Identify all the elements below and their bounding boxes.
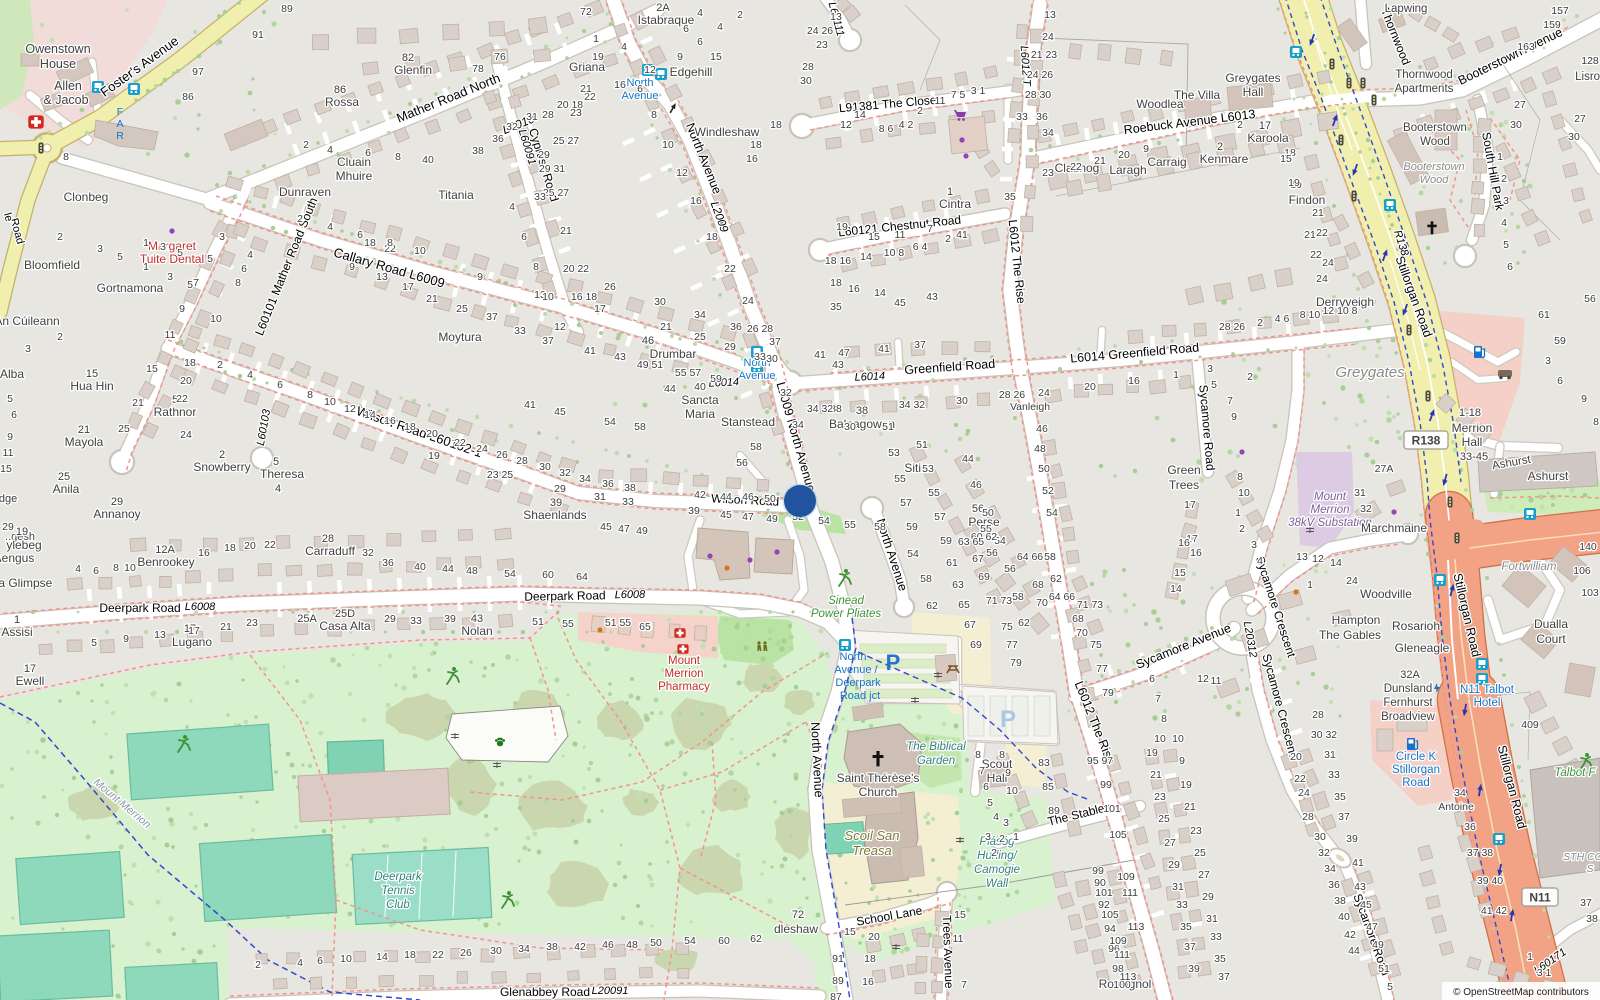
svg-text:30: 30	[800, 75, 812, 87]
svg-text:77: 77	[1006, 639, 1018, 651]
svg-text:8: 8	[1593, 416, 1599, 428]
svg-text:6: 6	[1507, 261, 1513, 273]
svg-text:24 26: 24 26	[1027, 69, 1053, 81]
svg-text:Booterstown: Booterstown	[1403, 161, 1464, 173]
svg-text:5: 5	[273, 456, 279, 468]
svg-text:17: 17	[188, 625, 200, 637]
svg-text:69: 69	[978, 571, 990, 583]
svg-text:25D: 25D	[335, 608, 355, 620]
svg-text:3: 3	[167, 271, 173, 283]
svg-text:Hua Hin: Hua Hin	[70, 379, 113, 393]
svg-text:4: 4	[327, 221, 333, 233]
svg-text:4: 4	[697, 7, 703, 19]
svg-text:44: 44	[720, 491, 732, 503]
svg-text:2: 2	[255, 959, 261, 971]
svg-text:Hall: Hall	[1462, 435, 1483, 449]
svg-text:49: 49	[1372, 939, 1384, 951]
svg-text:409: 409	[1521, 719, 1539, 731]
svg-text:Deerpark: Deerpark	[835, 677, 881, 689]
svg-text:3: 3	[97, 243, 103, 255]
svg-text:50: 50	[1038, 463, 1050, 475]
svg-text:28: 28	[542, 109, 554, 121]
svg-text:Aengus: Aengus	[0, 551, 34, 565]
svg-text:14: 14	[376, 951, 388, 963]
svg-text:Thornwood: Thornwood	[1395, 69, 1453, 81]
svg-text:14: 14	[364, 409, 376, 421]
svg-text:38: 38	[1334, 895, 1346, 907]
svg-text:38: 38	[546, 941, 558, 953]
svg-text:39: 39	[550, 497, 562, 509]
svg-text:8: 8	[533, 261, 539, 273]
svg-text:16: 16	[848, 283, 860, 295]
svg-text:Hall: Hall	[1243, 85, 1264, 99]
svg-text:5: 5	[177, 247, 183, 259]
svg-text:3: 3	[219, 231, 225, 243]
svg-text:36: 36	[730, 321, 742, 333]
svg-text:25 27: 25 27	[543, 187, 569, 199]
svg-text:83: 83	[1038, 757, 1050, 769]
svg-text:4: 4	[275, 483, 281, 495]
svg-text:72: 72	[792, 909, 804, 921]
svg-text:2: 2	[917, 105, 923, 117]
svg-text:59: 59	[710, 373, 722, 385]
svg-text:29: 29	[111, 496, 123, 508]
svg-text:3 1: 3 1	[971, 85, 986, 97]
svg-text:7 5: 7 5	[951, 89, 966, 101]
svg-text:25: 25	[1194, 847, 1206, 859]
svg-text:51: 51	[916, 439, 928, 451]
svg-text:89: 89	[832, 975, 844, 987]
svg-text:9: 9	[1179, 755, 1185, 767]
svg-text:8: 8	[307, 389, 313, 401]
svg-text:27: 27	[1164, 837, 1176, 849]
svg-text:37: 37	[542, 335, 554, 347]
svg-text:21: 21	[660, 321, 672, 333]
svg-text:99: 99	[1092, 865, 1104, 877]
svg-text:111: 111	[1122, 887, 1138, 899]
svg-text:56: 56	[1584, 293, 1596, 305]
svg-text:19: 19	[836, 221, 848, 233]
svg-text:24 26: 24 26	[807, 25, 833, 37]
svg-text:Trees: Trees	[1169, 478, 1199, 492]
svg-text:2: 2	[57, 231, 63, 243]
svg-text:111: 111	[1114, 949, 1130, 961]
svg-text:Kenmare: Kenmare	[1200, 152, 1249, 166]
svg-text:6: 6	[683, 23, 689, 35]
svg-text:38: 38	[472, 145, 484, 157]
svg-text:37: 37	[1184, 941, 1196, 953]
svg-text:Rathnor: Rathnor	[154, 405, 197, 419]
svg-text:62: 62	[926, 600, 938, 612]
svg-text:59: 59	[906, 521, 918, 533]
svg-text:6: 6	[317, 955, 323, 967]
svg-text:47: 47	[742, 511, 754, 523]
svg-text:33: 33	[754, 351, 766, 363]
svg-text:34: 34	[1454, 787, 1466, 799]
svg-text:8: 8	[235, 277, 241, 289]
svg-text:68: 68	[1032, 579, 1044, 591]
svg-text:52: 52	[1042, 485, 1054, 497]
svg-text:4: 4	[1501, 217, 1507, 229]
svg-text:6: 6	[357, 229, 363, 241]
svg-text:10: 10	[1006, 785, 1018, 797]
svg-text:14: 14	[860, 251, 872, 263]
svg-text:3: 3	[985, 831, 991, 843]
svg-text:9: 9	[1231, 411, 1237, 423]
svg-text:9: 9	[7, 431, 13, 443]
svg-text:9: 9	[477, 271, 483, 283]
svg-text:34 32: 34 32	[807, 403, 833, 415]
svg-text:22: 22	[1294, 773, 1306, 785]
svg-text:✝: ✝	[870, 749, 887, 771]
svg-text:20 22: 20 22	[563, 263, 589, 275]
svg-text:15: 15	[868, 231, 880, 243]
svg-text:18: 18	[364, 237, 376, 249]
svg-text:69: 69	[970, 639, 982, 651]
svg-text:Windleshaw: Windleshaw	[695, 125, 760, 139]
svg-text:48: 48	[466, 565, 478, 577]
svg-text:30: 30	[766, 353, 778, 365]
svg-text:Power Pliates: Power Pliates	[811, 608, 882, 620]
svg-text:4: 4	[75, 563, 81, 575]
svg-text:30: 30	[1568, 131, 1580, 143]
svg-text:33: 33	[1328, 769, 1340, 781]
svg-text:ea Glimpse: ea Glimpse	[0, 576, 53, 590]
svg-text:24: 24	[476, 443, 488, 455]
svg-text:2: 2	[1257, 317, 1263, 329]
svg-text:22: 22	[1070, 161, 1082, 173]
svg-text:2: 2	[991, 847, 997, 859]
svg-text:2: 2	[1501, 173, 1507, 185]
svg-text:27A: 27A	[1375, 463, 1394, 475]
svg-text:2: 2	[57, 331, 63, 343]
svg-text:19: 19	[1180, 779, 1192, 791]
svg-text:10 8: 10 8	[884, 247, 905, 259]
svg-text:11: 11	[953, 933, 964, 945]
svg-text:N11 Talbot: N11 Talbot	[1460, 684, 1515, 696]
svg-text:R: R	[116, 130, 124, 142]
svg-text:10: 10	[1154, 733, 1166, 745]
svg-text:Dunsland: Dunsland	[1384, 683, 1433, 695]
svg-text:4: 4	[327, 144, 333, 156]
svg-text:29: 29	[1202, 891, 1214, 903]
svg-text:1: 1	[1497, 151, 1503, 163]
svg-text:5: 5	[207, 253, 213, 265]
svg-text:30: 30	[844, 421, 856, 433]
svg-text:33-45: 33-45	[1460, 451, 1488, 463]
svg-text:3: 3	[160, 241, 166, 253]
svg-text:20: 20	[1118, 149, 1130, 161]
svg-text:25A: 25A	[297, 613, 317, 625]
svg-text:36: 36	[1464, 821, 1476, 833]
svg-text:19: 19	[592, 51, 604, 63]
svg-text:7: 7	[927, 223, 933, 235]
svg-text:24: 24	[742, 295, 754, 307]
svg-text:27: 27	[1514, 99, 1526, 111]
svg-text:50: 50	[650, 937, 662, 949]
svg-text:16 18: 16 18	[571, 291, 597, 303]
svg-text:36: 36	[492, 133, 504, 145]
svg-text:2: 2	[945, 233, 951, 245]
svg-text:2: 2	[737, 9, 743, 21]
svg-text:39: 39	[1188, 963, 1200, 975]
svg-text:12 10 8: 12 10 8	[1322, 305, 1357, 317]
svg-text:L6008: L6008	[185, 601, 216, 613]
svg-text:8 6: 8 6	[879, 123, 894, 135]
svg-text:41: 41	[584, 345, 596, 357]
svg-text:1: 1	[1307, 579, 1313, 591]
svg-text:68: 68	[1072, 613, 1084, 625]
svg-text:15: 15	[1174, 567, 1186, 579]
svg-text:59: 59	[940, 535, 952, 547]
svg-text:Lugano: Lugano	[172, 635, 212, 649]
svg-text:34: 34	[1324, 863, 1336, 875]
svg-text:38: 38	[856, 405, 868, 417]
svg-text:51: 51	[532, 616, 544, 628]
svg-text:35: 35	[1180, 921, 1192, 933]
svg-text:46: 46	[642, 335, 654, 347]
svg-text:79: 79	[1102, 687, 1114, 699]
svg-text:30 32: 30 32	[1311, 729, 1337, 741]
svg-text:41: 41	[956, 229, 968, 241]
svg-text:Pharmacy: Pharmacy	[658, 681, 710, 693]
svg-text:Stanstead: Stanstead	[721, 415, 775, 429]
svg-text:Treasa: Treasa	[852, 843, 892, 858]
svg-text:22: 22	[724, 263, 736, 275]
svg-text:Circle K: Circle K	[1396, 751, 1437, 763]
svg-text:6: 6	[365, 147, 371, 159]
svg-text:54: 54	[818, 515, 830, 527]
svg-text:12: 12	[676, 167, 688, 179]
svg-text:54: 54	[684, 935, 696, 947]
svg-text:22: 22	[1310, 249, 1322, 261]
svg-text:Dualla: Dualla	[1534, 617, 1568, 631]
svg-text:10: 10	[210, 313, 222, 325]
svg-text:Wall: Wall	[986, 878, 1009, 890]
svg-text:Gortnamona: Gortnamona	[97, 281, 164, 295]
svg-text:12: 12	[344, 403, 356, 415]
svg-text:Trees Avenue: Trees Avenue	[940, 915, 957, 989]
svg-text:16: 16	[862, 976, 874, 988]
svg-text:Merrion: Merrion	[1311, 504, 1350, 516]
svg-text:41: 41	[1352, 857, 1364, 869]
svg-text:38: 38	[624, 482, 636, 494]
svg-text:13: 13	[1296, 551, 1308, 563]
svg-text:29 31: 29 31	[539, 163, 565, 175]
svg-text:32: 32	[1318, 847, 1330, 859]
svg-text:41: 41	[878, 343, 890, 355]
svg-text:2: 2	[999, 833, 1005, 845]
svg-text:Antoine: Antoine	[1438, 801, 1474, 813]
svg-text:27: 27	[1574, 113, 1586, 125]
svg-text:5: 5	[91, 637, 97, 649]
svg-text:36: 36	[602, 478, 614, 490]
svg-text:26: 26	[496, 449, 508, 461]
svg-text:11: 11	[1211, 675, 1222, 687]
svg-text:101: 101	[1095, 887, 1113, 899]
svg-text:5: 5	[1503, 239, 1509, 251]
svg-text:18: 18	[404, 421, 416, 433]
svg-text:3: 3	[25, 343, 31, 355]
svg-text:26 28: 26 28	[747, 323, 773, 335]
svg-text:3: 3	[1003, 817, 1009, 829]
svg-text:Apartments: Apartments	[1395, 83, 1454, 95]
svg-text:S: S	[1586, 863, 1593, 875]
svg-text:34: 34	[518, 943, 530, 955]
svg-text:Fernhurst: Fernhurst	[1383, 697, 1433, 709]
svg-text:8: 8	[975, 749, 981, 761]
svg-text:17: 17	[594, 303, 606, 315]
svg-text:30: 30	[956, 395, 968, 407]
svg-text:128: 128	[1581, 55, 1599, 67]
svg-text:101: 101	[1103, 803, 1121, 815]
svg-text:42: 42	[694, 489, 706, 501]
svg-text:33: 33	[514, 325, 526, 337]
svg-text:6: 6	[1149, 673, 1155, 685]
svg-text:33: 33	[534, 191, 546, 203]
svg-text:54: 54	[604, 416, 616, 428]
svg-text:33: 33	[1210, 931, 1222, 943]
svg-text:6: 6	[697, 36, 703, 48]
svg-text:41: 41	[814, 349, 826, 361]
svg-text:58: 58	[1044, 551, 1056, 563]
svg-text:Shaenlands: Shaenlands	[523, 508, 586, 522]
svg-text:61: 61	[946, 557, 958, 569]
svg-text:2A: 2A	[656, 2, 670, 14]
svg-text:91: 91	[832, 953, 844, 965]
svg-text:13: 13	[830, 11, 842, 23]
svg-text:dge: dge	[0, 493, 17, 505]
svg-text:22: 22	[1316, 227, 1328, 239]
svg-text:6: 6	[93, 565, 99, 577]
svg-text:Avenue /: Avenue /	[834, 664, 878, 676]
svg-text:7: 7	[193, 277, 199, 289]
svg-text:10: 10	[1238, 487, 1250, 499]
svg-text:18: 18	[706, 231, 718, 243]
svg-text:Benrookey: Benrookey	[137, 555, 194, 569]
svg-text:67: 67	[972, 553, 984, 565]
svg-text:18: 18	[404, 949, 416, 961]
svg-text:105: 105	[1109, 829, 1127, 841]
svg-text:31: 31	[1172, 881, 1184, 893]
svg-text:26: 26	[460, 947, 472, 959]
svg-text:22: 22	[176, 393, 188, 405]
svg-text:95 97: 95 97	[1087, 755, 1113, 767]
svg-text:34: 34	[1042, 127, 1054, 139]
svg-text:37: 37	[1580, 897, 1592, 909]
svg-text:106: 106	[1573, 565, 1591, 577]
svg-text:45: 45	[554, 406, 566, 418]
svg-text:19: 19	[16, 526, 28, 538]
svg-text:56: 56	[736, 457, 748, 469]
svg-text:1: 1	[143, 261, 149, 273]
svg-text:140: 140	[1579, 541, 1597, 553]
svg-text:Greygates: Greygates	[1335, 364, 1405, 381]
svg-text:8 10: 8 10	[1300, 309, 1321, 321]
svg-text:54: 54	[907, 548, 919, 560]
svg-text:113: 113	[1128, 921, 1145, 933]
svg-text:22: 22	[264, 539, 276, 551]
svg-text:70: 70	[1036, 597, 1048, 609]
svg-text:12A: 12A	[155, 544, 175, 556]
svg-text:23: 23	[1190, 825, 1202, 837]
svg-text:Deerpark Road: Deerpark Road	[524, 588, 606, 603]
svg-text:© OpenStreetMap contributors: © OpenStreetMap contributors	[1453, 987, 1589, 998]
svg-text:25: 25	[58, 471, 70, 483]
svg-text:18: 18	[184, 357, 196, 369]
svg-text:33: 33	[1176, 899, 1188, 911]
svg-text:45: 45	[894, 297, 906, 309]
svg-text:10: 10	[324, 396, 336, 408]
svg-text:49: 49	[766, 513, 778, 525]
svg-text:5: 5	[987, 797, 993, 809]
svg-text:Allen: Allen	[54, 79, 82, 93]
svg-text:42: 42	[1344, 929, 1356, 941]
svg-text:46: 46	[602, 939, 614, 951]
svg-text:8: 8	[395, 151, 401, 163]
svg-text:12: 12	[840, 119, 852, 131]
svg-text:13: 13	[154, 629, 166, 641]
svg-text:P: P	[886, 650, 901, 675]
svg-text:4 2: 4 2	[899, 119, 914, 131]
svg-text:42: 42	[574, 941, 586, 953]
svg-text:58: 58	[634, 421, 646, 433]
svg-text:55: 55	[562, 618, 574, 630]
svg-text:44: 44	[1348, 945, 1360, 957]
svg-text:12: 12	[1197, 673, 1209, 685]
svg-text:Theresa: Theresa	[260, 467, 304, 481]
svg-text:60: 60	[718, 935, 730, 947]
svg-text:19: 19	[1146, 747, 1158, 759]
svg-text:Ashurst: Ashurst	[1528, 469, 1569, 483]
svg-text:76: 76	[494, 51, 506, 63]
svg-text:1: 1	[143, 237, 149, 249]
svg-text:25: 25	[456, 303, 468, 315]
svg-text:109: 109	[1117, 871, 1135, 883]
svg-text:P: P	[1000, 706, 1016, 733]
svg-text:30: 30	[654, 296, 666, 308]
svg-text:Saint Thérèse's: Saint Thérèse's	[837, 771, 920, 785]
svg-text:Casa Alta: Casa Alta	[319, 619, 371, 633]
svg-text:20: 20	[426, 428, 438, 440]
svg-text:8: 8	[999, 749, 1005, 761]
svg-text:6: 6	[241, 263, 247, 275]
svg-text:3 1: 3 1	[1537, 967, 1552, 979]
svg-text:35: 35	[1214, 953, 1226, 965]
svg-text:21: 21	[1312, 207, 1324, 219]
svg-text:109: 109	[1109, 935, 1127, 947]
svg-text:Anila: Anila	[53, 482, 80, 496]
svg-text:5: 5	[1211, 379, 1217, 391]
svg-text:L6014: L6014	[854, 370, 885, 384]
svg-text:21: 21	[1094, 155, 1106, 167]
svg-text:F: F	[117, 106, 123, 118]
svg-text:60: 60	[542, 569, 554, 581]
svg-text:Booterstown: Booterstown	[1403, 122, 1467, 134]
svg-text:7: 7	[1227, 395, 1233, 407]
svg-text:21: 21	[220, 621, 232, 633]
svg-text:23: 23	[570, 107, 582, 119]
svg-text:20: 20	[1084, 381, 1096, 393]
svg-text:Clonbeg: Clonbeg	[64, 190, 109, 204]
svg-text:29: 29	[554, 483, 566, 495]
svg-text:Moytura: Moytura	[438, 330, 482, 344]
svg-text:25: 25	[694, 331, 706, 343]
svg-text:47: 47	[618, 523, 630, 535]
svg-text:1: 1	[1527, 951, 1533, 963]
svg-text:Gleneagle: Gleneagle	[1395, 641, 1450, 655]
svg-text:13: 13	[376, 271, 388, 283]
